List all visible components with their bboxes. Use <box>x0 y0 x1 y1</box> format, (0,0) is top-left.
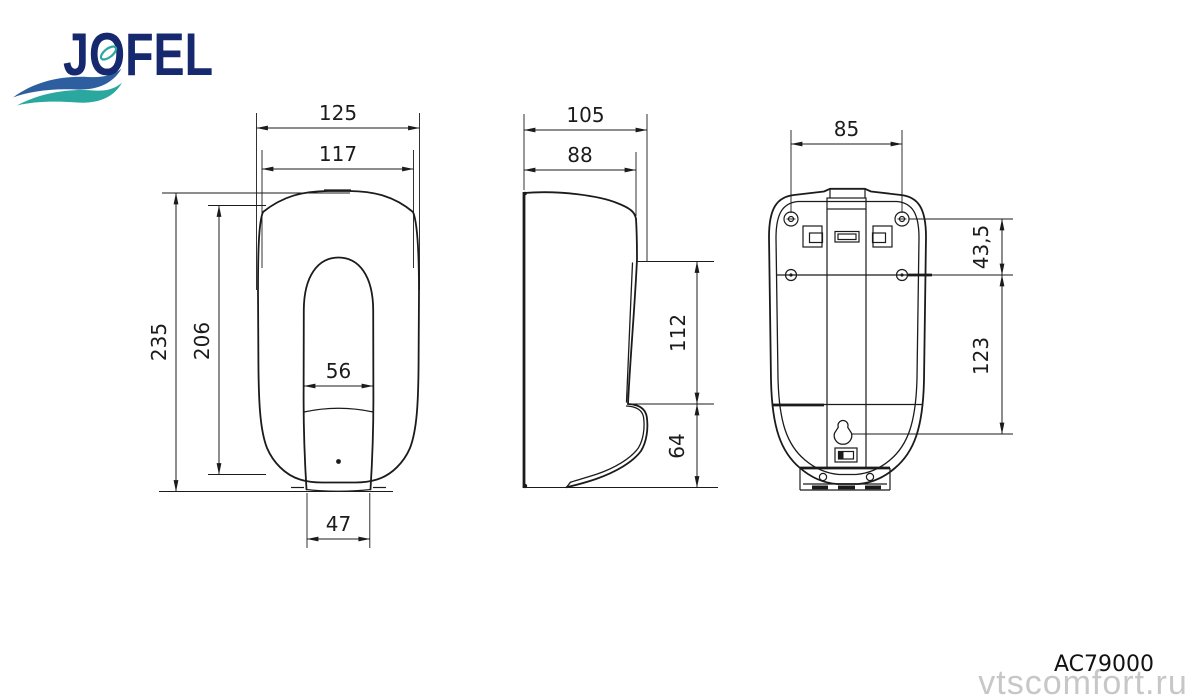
side-lever-outer <box>567 404 648 487</box>
dim-front-base-width: 47 <box>307 493 370 548</box>
dim-label-front-base-width: 47 <box>326 512 351 536</box>
dim-label-side-overall-depth: 105 <box>566 103 604 127</box>
dim-side-body-depth: 88 <box>524 143 636 216</box>
dim-front-window-width: 56 <box>304 359 373 386</box>
dim-label-front-overall-width: 125 <box>319 101 357 125</box>
back-hanger-slot <box>827 198 866 209</box>
logo-wordmark: JOFEL <box>63 21 213 88</box>
front-nozzle-dot <box>336 459 341 464</box>
dim-front-body-width: 117 <box>262 142 414 268</box>
dim-back-keyhole-offset: 123 <box>851 275 1013 434</box>
back-clip-left <box>803 226 823 247</box>
dim-side-overall-depth: 105 <box>524 103 647 261</box>
side-top-edge <box>524 192 636 219</box>
dim-back-hole-spacing: 85 <box>791 117 902 213</box>
product-code: AC79000 <box>1054 652 1154 677</box>
side-lever-inner <box>571 406 645 482</box>
back-center-slot <box>835 232 859 243</box>
dim-front-overall-height: 235 <box>147 193 393 492</box>
dim-label-back-keyhole-offset: 123 <box>969 337 993 375</box>
dim-label-front-body-height: 206 <box>190 322 214 360</box>
dim-label-side-front-panel-height: 112 <box>666 314 690 352</box>
side-top-corner-dot <box>523 192 527 196</box>
dim-side-lever-height: 64 <box>524 404 718 488</box>
back-switch <box>835 448 857 462</box>
dim-back-hole-row-offset: 43,5 <box>908 219 1013 275</box>
technical-drawing-sheet: JOFEL 125 117 235 <box>0 0 1200 700</box>
front-pushplate-bottom <box>307 490 371 492</box>
dim-label-side-lever-height: 64 <box>665 433 689 458</box>
front-body-outline <box>258 191 419 483</box>
dim-label-back-hole-spacing: 85 <box>834 117 859 141</box>
back-keyhole <box>834 420 852 444</box>
jofel-logo: JOFEL <box>13 21 213 106</box>
side-view: 105 88 112 64 <box>523 103 718 488</box>
dim-label-front-body-width: 117 <box>319 142 357 166</box>
dim-front-overall-width: 125 <box>257 101 420 290</box>
front-pushplate-top-edge <box>304 408 373 412</box>
back-screw-hole-top-left <box>784 212 798 226</box>
dim-label-front-overall-height: 235 <box>147 323 171 361</box>
dim-front-body-height: 206 <box>190 206 266 475</box>
dim-side-front-panel-height: 112 <box>637 262 714 405</box>
front-view: 125 117 235 206 56 47 <box>147 101 420 548</box>
dim-label-back-hole-row-offset: 43,5 <box>969 225 993 270</box>
back-screw-hole-top-right <box>895 212 909 226</box>
dim-label-side-body-depth: 88 <box>567 143 592 167</box>
drawing-canvas: JOFEL 125 117 235 <box>0 0 1200 700</box>
back-clip-right <box>873 226 893 247</box>
back-view: 85 43,5 123 <box>769 117 1013 490</box>
dim-label-front-window-width: 56 <box>326 359 351 383</box>
back-outline-outer <box>769 189 926 484</box>
side-front-edge <box>628 219 637 404</box>
